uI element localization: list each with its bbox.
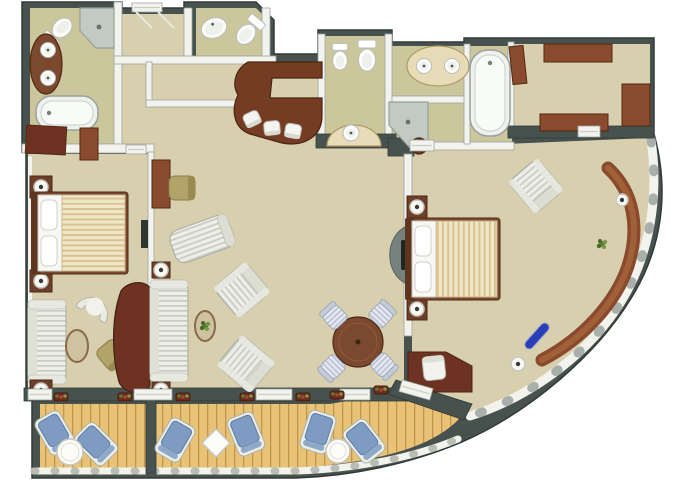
tv-master xyxy=(141,220,148,248)
wall-toilet-right xyxy=(262,8,270,60)
grand-piano xyxy=(114,283,150,393)
deck-table-1 xyxy=(57,439,83,465)
bedroom1-cabinet xyxy=(80,128,98,160)
chair-olive-2 xyxy=(169,176,195,200)
bar-stool-3 xyxy=(284,123,302,140)
floor-plan-svg xyxy=(0,0,680,486)
planter-1 xyxy=(54,393,68,401)
main-entry-door xyxy=(132,3,162,12)
planter-7 xyxy=(374,386,388,394)
lamp-2a xyxy=(154,263,168,277)
bedroom2-door xyxy=(410,140,434,151)
bathtub-2 xyxy=(470,50,510,136)
wall-bath1-right xyxy=(114,2,122,148)
sofa-living xyxy=(150,280,188,382)
toilet-2 xyxy=(358,40,376,71)
planter-5 xyxy=(296,393,310,401)
bedroom1-door xyxy=(126,145,146,154)
closet-door xyxy=(578,126,600,137)
wall-entry-right xyxy=(184,8,192,60)
lamp-4b xyxy=(511,357,525,371)
bathtub-master xyxy=(36,96,98,130)
bed-master xyxy=(31,192,128,274)
desk-chair xyxy=(422,355,446,381)
dressing-table xyxy=(152,160,170,208)
lamp-1b xyxy=(34,274,48,288)
planter-2 xyxy=(118,393,132,401)
balcony-divider xyxy=(146,396,156,474)
wall-living-north xyxy=(146,100,240,107)
floor-plan xyxy=(0,0,680,486)
floor-plan-image xyxy=(0,0,680,486)
balcony-door-2 xyxy=(134,389,172,400)
vanity-master xyxy=(30,34,62,94)
bed-2 xyxy=(405,218,500,300)
balcony-door-1 xyxy=(28,389,52,400)
planter-4 xyxy=(240,393,254,401)
bedroom1-wardrobe xyxy=(25,125,66,155)
planter-3 xyxy=(176,393,190,401)
rug-1 xyxy=(66,330,88,362)
closet-wardrobe-3 xyxy=(622,84,650,126)
lamp-4a xyxy=(616,194,628,206)
balcony-door-3 xyxy=(256,389,292,400)
entry-foyer-floor xyxy=(122,14,184,58)
wall-hall-east xyxy=(146,62,152,104)
bar-stool-2 xyxy=(263,120,280,136)
deck-table-3 xyxy=(326,439,350,463)
planter-6 xyxy=(330,391,344,399)
bidet xyxy=(332,44,347,70)
lamp-3a xyxy=(410,200,424,214)
lamp-3b xyxy=(410,302,424,316)
wall-bath2-right xyxy=(385,34,392,146)
closet-wardrobe-1 xyxy=(544,44,612,62)
sofa-master xyxy=(28,300,66,384)
vanity-double xyxy=(407,46,469,86)
